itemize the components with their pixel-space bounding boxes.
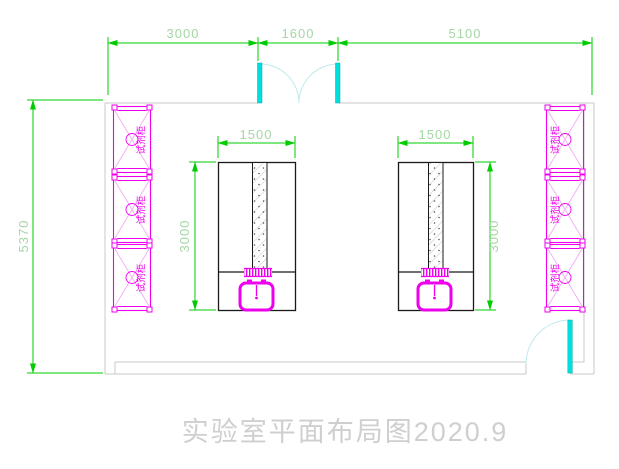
lab-bench-left bbox=[219, 163, 296, 311]
door-swing-arc bbox=[299, 64, 338, 103]
lab-bench-right bbox=[399, 163, 474, 311]
sink-grille bbox=[421, 269, 449, 277]
cabinet-label: 试剂柜 bbox=[550, 195, 562, 224]
sink-tap bbox=[261, 280, 266, 285]
cabinet-label: 试剂柜 bbox=[550, 125, 562, 154]
cabinet-label: 试剂柜 bbox=[136, 195, 148, 224]
sink-tap bbox=[425, 280, 430, 285]
sink-tap bbox=[247, 280, 252, 285]
cabinet-label: 试剂柜 bbox=[550, 263, 562, 292]
dim-bench-left-depth-label: 3000 bbox=[177, 220, 192, 253]
reagent-cabinets-right: 试剂柜 试剂柜 试剂柜 bbox=[545, 105, 585, 312]
cad-floor-plan-view: 试剂柜 试剂柜 试剂柜 试剂柜 试剂柜 试剂柜 bbox=[0, 0, 619, 469]
sink-grille bbox=[244, 269, 272, 277]
drawing-title: 实验室平面布局图2020.9 bbox=[182, 417, 509, 447]
reagent-cabinets-left: 试剂柜 试剂柜 试剂柜 bbox=[112, 105, 152, 312]
cabinet-label: 试剂柜 bbox=[136, 263, 148, 292]
bench-hatch-dots bbox=[429, 163, 444, 272]
bench-hatch-dots bbox=[253, 163, 268, 272]
door-swing-arc bbox=[526, 320, 570, 364]
dim-bench-left-width-label: 1500 bbox=[240, 127, 273, 142]
dim-top-right-label: 5100 bbox=[449, 26, 482, 41]
dim-top-left-label: 3000 bbox=[167, 26, 200, 41]
floor-plan-canvas: 试剂柜 试剂柜 试剂柜 试剂柜 试剂柜 试剂柜 bbox=[0, 0, 619, 469]
dim-room-height-label: 5370 bbox=[16, 220, 31, 253]
single-door-bottom-right bbox=[526, 320, 572, 373]
double-door-top bbox=[258, 63, 341, 103]
door-leaf bbox=[568, 320, 573, 373]
door-leaf bbox=[336, 63, 341, 103]
sink-tap bbox=[439, 280, 444, 285]
dim-top-door-label: 1600 bbox=[282, 26, 315, 41]
sink-symbol bbox=[418, 269, 451, 311]
dimension-annotations: 3000 1600 5100 5370 1500 3000 bbox=[16, 26, 592, 373]
cabinet-label: 试剂柜 bbox=[136, 125, 148, 154]
dim-bench-right-depth-label: 3000 bbox=[486, 220, 501, 253]
dim-bench-right-width-label: 1500 bbox=[419, 127, 452, 142]
sink-symbol bbox=[240, 269, 273, 311]
door-leaf bbox=[258, 63, 263, 103]
door-swing-arc bbox=[260, 64, 299, 103]
